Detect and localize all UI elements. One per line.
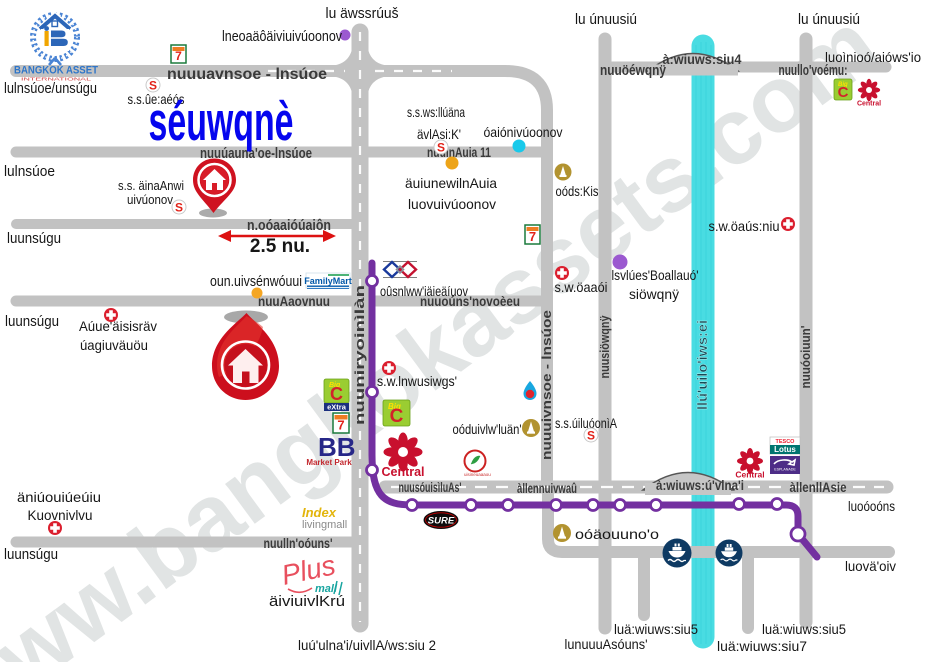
svg-text:7: 7 [529,229,536,244]
svg-text:lulnsúoe: lulnsúoe [4,163,55,180]
svg-text:C: C [838,84,849,101]
svg-text:s.s. äinaAnwi: s.s. äinaAnwi [118,178,184,193]
svg-text:nuuAaovnuu: nuuAaovnuu [258,293,330,309]
svg-text:uivúonov: uivúonov [127,192,173,207]
svg-text:óaiónivúoonov: óaiónivúoonov [484,124,563,140]
svg-text:Market Park: Market Park [306,458,352,467]
svg-text:Lotus: Lotus [774,445,796,454]
svg-text:lu únuusiú: lu únuusiú [798,11,860,28]
svg-text:7: 7 [175,49,182,63]
svg-text:nuusiöwqnÿ: nuusiöwqnÿ [598,315,612,378]
svg-text:luä:wiuws:siu5: luä:wiuws:siu5 [762,621,846,637]
svg-text:BANGKOK ASSET: BANGKOK ASSET [14,65,98,77]
svg-text:Central: Central [381,465,424,479]
svg-text:luä:wiuws:siu7: luä:wiuws:siu7 [717,638,807,654]
svg-text:llú'uilo'iws:ei: llú'uilo'iws:ei [694,320,710,410]
svg-text:nuuöéwqnÿ: nuuöéwqnÿ [600,63,666,79]
svg-text:Central: Central [857,101,881,108]
svg-text:àllenllAsie: àllenllAsie [790,479,847,495]
svg-text:lsvlúes'Boallauó': lsvlúes'Boallauó' [612,267,699,283]
svg-text:luunsúgu: luunsúgu [4,546,58,563]
svg-text:äiviuivlKrú: äiviuivlKrú [269,593,345,610]
svg-text:luú'ulna'i/uivllA/ws:siu 2: luú'ulna'i/uivllA/ws:siu 2 [298,637,436,653]
svg-text:Index: Index [302,505,337,520]
svg-text:séuwqnè: séuwqnè [149,92,294,153]
svg-text:INTERNATIONAL: INTERNATIONAL [21,77,92,82]
svg-text:nuuóoiuun': nuuóoiuun' [799,325,813,388]
svg-text:livingmall: livingmall [302,519,347,531]
svg-text:àllennuivwaû: àllennuivwaû [517,480,577,496]
svg-text:SURE: SURE [428,516,455,527]
svg-text:nuuuivnsoe - lnsúoe: nuuuivnsoe - lnsúoe [540,310,554,460]
svg-text:FamilyMart: FamilyMart [304,276,352,286]
svg-text:luovuivúoonov: luovuivúoonov [408,196,496,212]
svg-text:luunsúgu: luunsúgu [7,230,61,247]
svg-text:7: 7 [337,418,344,433]
svg-text:n.oóaaióúaiôn: n.oóaaióúaiôn [247,218,331,234]
svg-text:eXtra: eXtra [327,403,347,412]
svg-text:lulnsúoe/unsúgu: lulnsúoe/unsúgu [4,80,97,97]
svg-text:lunuuuAsóuns': lunuuuAsóuns' [565,636,648,652]
svg-text:2.5 nu.: 2.5 nu. [250,236,310,257]
svg-text:oóds:Kis: oóds:Kis [556,183,599,199]
svg-text:uisineuaaaou: uisineuaaaou [464,472,491,477]
svg-text:lneoaäôäiviuivúoonov: lneoaäôäiviuivúoonov [222,29,343,45]
svg-text:S: S [587,429,595,443]
svg-text:luä:wiuws:siu5: luä:wiuws:siu5 [614,621,698,637]
svg-text:s.w.lnwusiwgs': s.w.lnwusiwgs' [377,373,457,389]
svg-text:oûsnlww'iäieäíuov: oûsnlww'iäieäíuov [380,283,468,299]
svg-text:luoìnioó/aióws'io: luoìnioó/aióws'io [825,49,921,65]
svg-text:S: S [149,79,157,93]
svg-text:C: C [330,384,343,404]
svg-text:äniúouiúeúiu: äniúouiúeúiu [17,489,101,505]
svg-text:luovä'oiv: luovä'oiv [845,558,896,574]
svg-text:oóduivlw'luän': oóduivlw'luän' [453,421,522,437]
svg-text:à:wiuws:siu4: à:wiuws:siu4 [663,52,742,67]
svg-text:C: C [390,406,404,427]
svg-text:luoóoóns: luoóoóns [848,498,895,514]
svg-text:Kuovnivlvu: Kuovnivlvu [28,507,93,523]
svg-text:s.s.ws:llúäna: s.s.ws:llúäna [407,104,465,120]
svg-text:siöwqnÿ: siöwqnÿ [629,286,679,302]
svg-text:nuulln'oóuns': nuulln'oóuns' [264,535,333,551]
svg-text:äuiunewilnAuia: äuiunewilnAuia [405,175,497,191]
svg-text:Central: Central [735,470,764,480]
svg-text:S: S [175,201,183,215]
svg-text:nuuniryoinìlàn: nuuniryoinìlàn [352,285,367,425]
svg-text:ESPLANADE: ESPLANADE [774,468,796,472]
svg-text:nuusóuisìluAs': nuusóuisìluAs' [399,479,462,495]
svg-text:S: S [437,141,445,155]
svg-text:luunsúgu: luunsúgu [5,313,59,330]
svg-text:nuullo'voému:: nuullo'voému: [779,63,848,79]
svg-text:à:wiuws:ú'vlna'i: à:wiuws:ú'vlna'i [656,478,744,493]
svg-text:nuuuavnsoe - lnsúoe: nuuuavnsoe - lnsúoe [167,66,327,83]
svg-text:oóäouuno'o: oóäouuno'o [575,526,659,542]
svg-text:s.w.öaús:niu: s.w.öaús:niu [709,218,780,234]
svg-text:s.w.öaaói: s.w.öaaói [555,279,608,295]
svg-text:lu únuusiú: lu únuusiú [575,11,637,28]
svg-text:lu äwssrúuš: lu äwssrúuš [326,5,399,22]
svg-text:Aúue'äisisräv: Aúue'äisisräv [79,318,157,334]
svg-text:úagiuväuöu: úagiuväuöu [80,337,148,353]
